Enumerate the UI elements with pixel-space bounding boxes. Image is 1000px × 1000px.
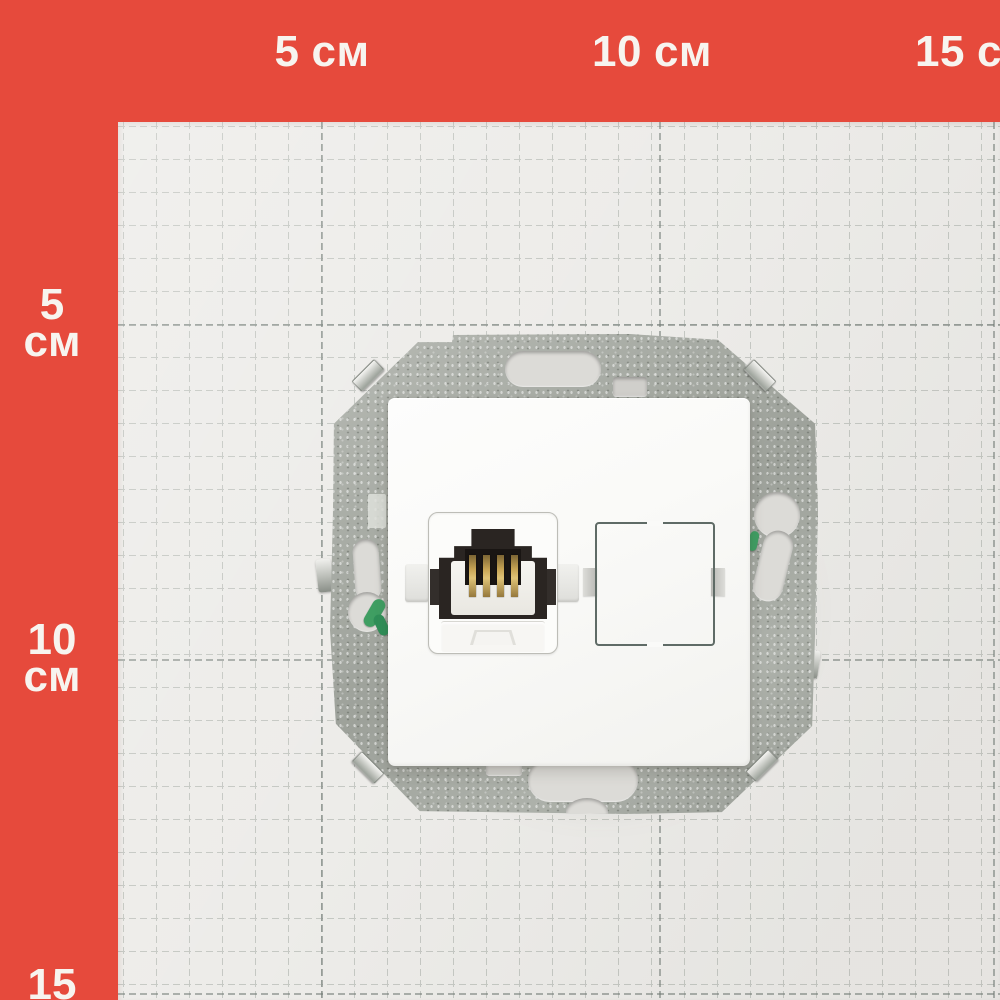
frame-stamped-detail: [368, 494, 386, 528]
frame-cutout-top: [505, 351, 601, 387]
rj11-contact-pin: [483, 555, 490, 597]
product-photo-measuring-board: 5см 10см 15см 5см 10см 15см: [0, 0, 1000, 1000]
ruler-top-label-5cm: 5см: [274, 30, 369, 74]
blank-module-border-gap-bottom: [647, 642, 663, 647]
ruler-left-label-10cm: 10см: [0, 622, 104, 696]
ruler-top-label-15cm: 15см: [915, 30, 1000, 74]
rj11-dust-shutter: [441, 621, 545, 652]
shutter-grip-mark: [470, 630, 516, 645]
ruler-top-label-10cm: 10см: [592, 30, 712, 74]
product-scene: [0, 0, 1000, 1000]
rj11-telephone-module: [428, 512, 558, 654]
ruler-left-label-15cm: 15см: [0, 967, 104, 1000]
rj11-contact-pin: [511, 555, 518, 597]
plaster-claw-left: [315, 558, 333, 592]
ruler-left-label-5cm: 5см: [0, 287, 104, 361]
rj11-jack-opening: [439, 529, 547, 619]
blank-module: [595, 522, 715, 646]
blank-module-border-gap-top: [647, 521, 663, 526]
rj11-contact-pin: [497, 555, 504, 597]
rj11-module-side-tab-left: [405, 564, 429, 602]
rj11-module-side-tab-right: [555, 564, 579, 602]
frame-cutout-top-square: [613, 377, 647, 397]
rj11-contact-pin: [469, 555, 476, 597]
faceplate: [388, 398, 750, 766]
